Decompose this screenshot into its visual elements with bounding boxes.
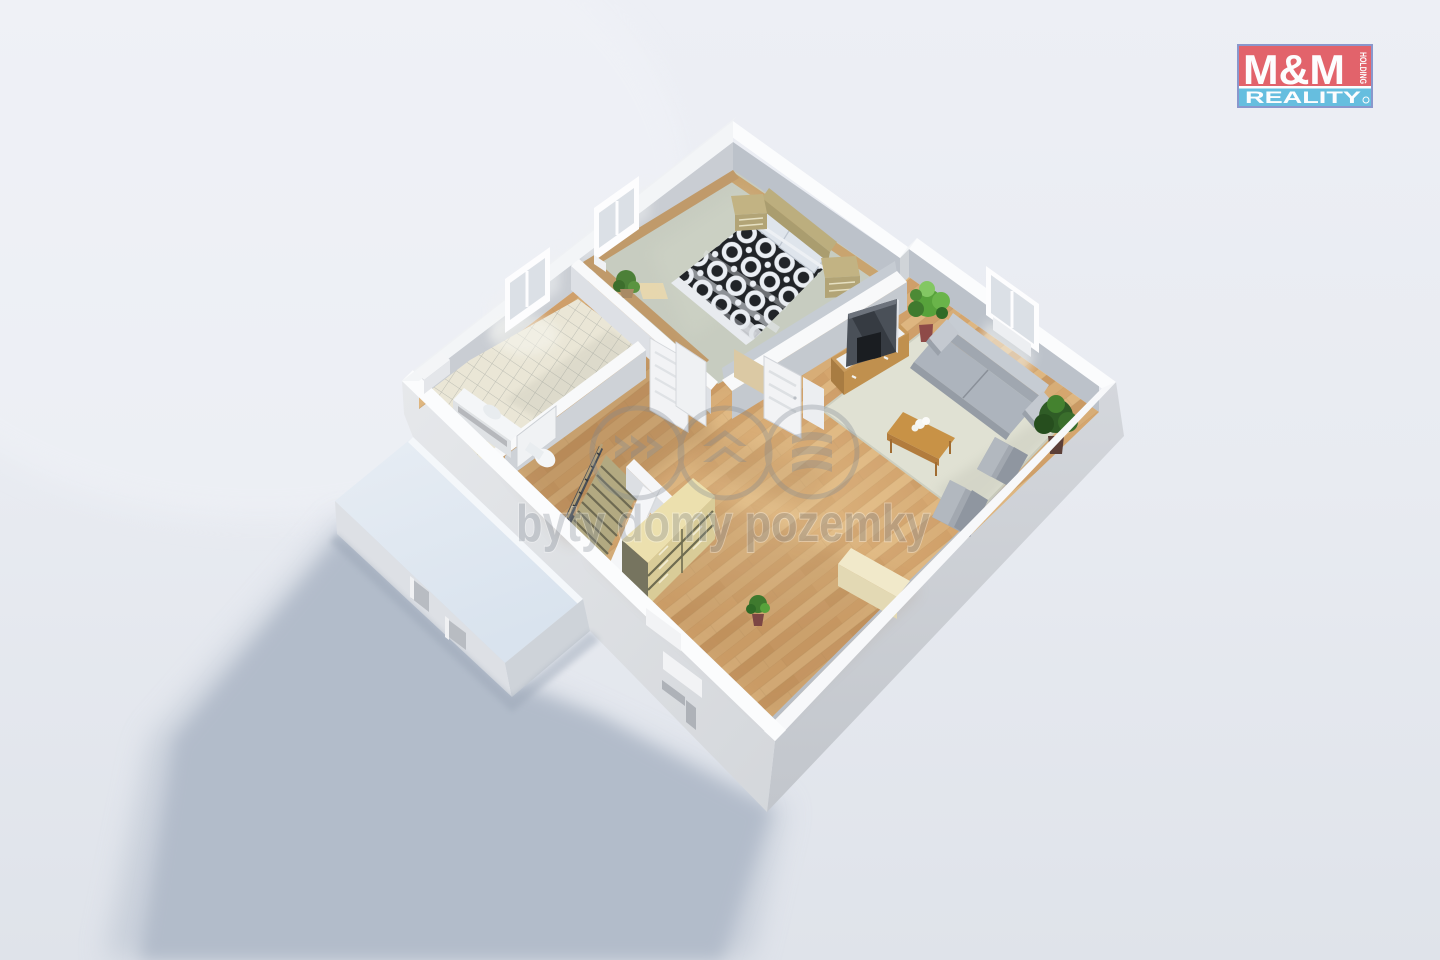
- svg-text:M&M: M&M: [1243, 46, 1345, 93]
- svg-text:REALITY: REALITY: [1245, 89, 1361, 107]
- svg-text:byty domy pozemky: byty domy pozemky: [516, 495, 930, 553]
- svg-text:HOLDING: HOLDING: [1358, 52, 1368, 84]
